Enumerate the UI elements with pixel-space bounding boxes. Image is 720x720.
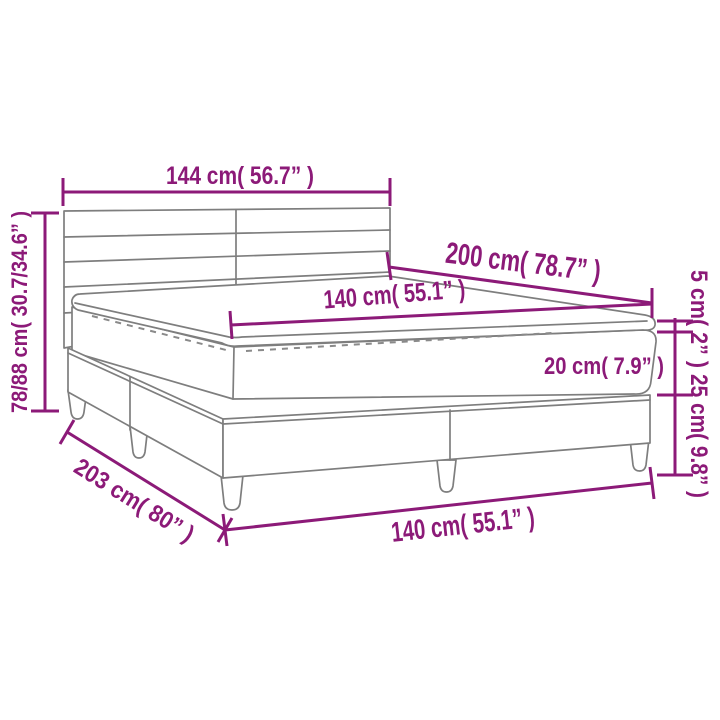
dim-total-height: 78/88 cm( 30.7/34.6” ) <box>7 211 59 413</box>
dim-label-bed-length: 200 cm( 78.7” ) <box>444 237 603 289</box>
dim-label-topper-height: 5 cm( 2” ) <box>685 270 712 368</box>
dim-label-mattress-height: 20 cm( 7.9” ) <box>544 353 664 380</box>
dim-label-total-height: 78/88 cm( 30.7/34.6” ) <box>7 211 32 413</box>
dim-headboard-width: 144 cm( 56.7” ) <box>63 162 390 206</box>
dim-total-height-lines <box>31 213 59 411</box>
diagram-svg: 144 cm( 56.7” ) 78/88 cm( 30.7/34.6” ) 2… <box>0 0 720 720</box>
mattress-corner-edge <box>233 347 234 399</box>
bed-leg-front-middle <box>437 460 456 492</box>
diagram-stage: 144 cm( 56.7” ) 78/88 cm( 30.7/34.6” ) 2… <box>0 0 720 720</box>
bed-leg-front-corner <box>221 475 243 510</box>
base-foot-face <box>223 395 650 478</box>
dim-label-base-height: 25 cm( 9.8” ) <box>685 374 712 498</box>
dim-label-headboard-width: 144 cm( 56.7” ) <box>166 162 314 190</box>
